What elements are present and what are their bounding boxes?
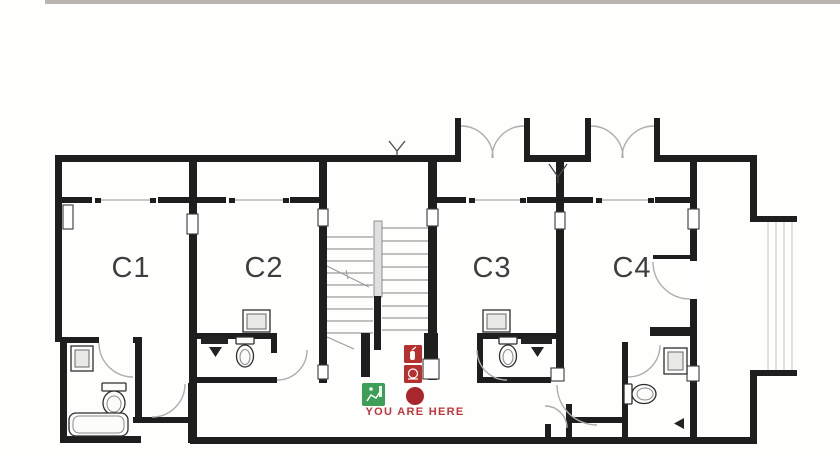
- you-are-here-dot: [406, 387, 424, 405]
- fire-extinguisher-icon: [404, 345, 422, 363]
- window: [687, 366, 699, 381]
- external-stair-railing: [768, 222, 792, 370]
- sink-icon: [243, 310, 270, 332]
- window: [688, 209, 699, 229]
- toilet-icon: [236, 337, 254, 367]
- room-label-c2: C2: [244, 252, 283, 284]
- sink-icon: [71, 346, 93, 371]
- c4-doorway-gap: [689, 261, 698, 299]
- stair-stringer: [374, 221, 382, 297]
- toilet-icon: [624, 384, 656, 404]
- c1-bathroom: [69, 346, 128, 436]
- sink-icon: [483, 310, 510, 332]
- walls: [55, 118, 797, 444]
- window: [423, 359, 439, 379]
- window: [551, 368, 564, 381]
- window: [63, 205, 73, 229]
- floor-plan-svg: YOU ARE HERE C1 C2 C3 C4: [0, 0, 840, 460]
- window: [427, 209, 438, 226]
- toilet-icon: [499, 337, 517, 367]
- room-label-c1: C1: [111, 252, 150, 284]
- door-swing-arcs: [99, 126, 690, 428]
- floor-plan-page: YOU ARE HERE C1 C2 C3 C4: [0, 0, 840, 460]
- bathtub-icon: [69, 413, 128, 436]
- sink-icon: [664, 348, 687, 374]
- toilet-icon: [102, 383, 126, 415]
- fire-hose-reel-icon: [404, 365, 422, 383]
- window: [318, 365, 328, 379]
- room-label-c3: C3: [472, 252, 511, 284]
- window: [187, 214, 198, 234]
- vanity-icon: [201, 336, 228, 357]
- faucet-icon: [674, 418, 684, 429]
- you-are-here-label: YOU ARE HERE: [366, 406, 465, 418]
- window: [318, 209, 328, 226]
- window: [555, 212, 565, 229]
- vanity-icon: [521, 336, 552, 357]
- room-label-c4: C4: [612, 252, 651, 284]
- top-bar: [45, 0, 840, 4]
- emergency-exit-icon: [362, 383, 385, 406]
